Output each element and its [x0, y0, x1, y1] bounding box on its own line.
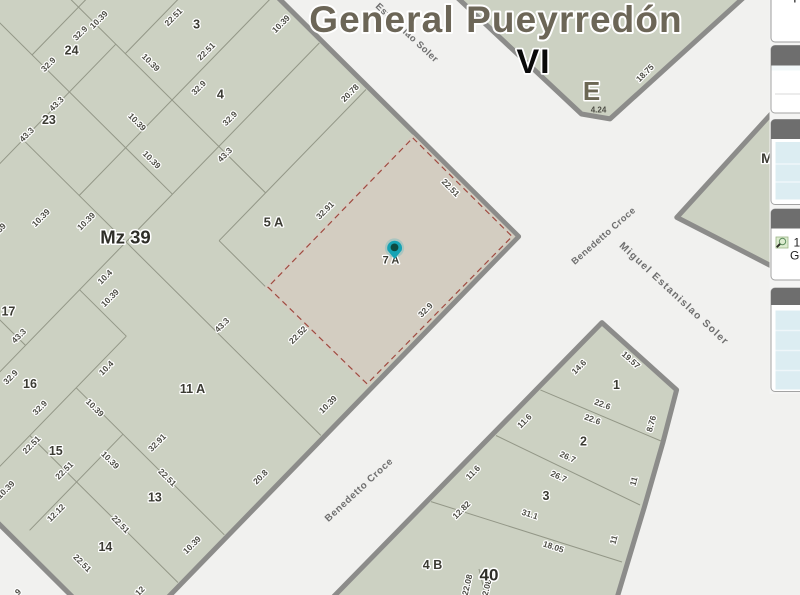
svg-text:16: 16	[23, 377, 37, 391]
svg-text:15: 15	[49, 444, 63, 458]
svg-text:19: 19	[794, 236, 800, 250]
svg-text:24: 24	[65, 44, 79, 58]
svg-text:E: E	[583, 76, 600, 106]
svg-text:5 A: 5 A	[264, 215, 284, 230]
svg-text:40: 40	[480, 566, 499, 585]
svg-text:13: 13	[148, 491, 162, 505]
svg-text:Gen: Gen	[790, 249, 800, 263]
svg-text:11 A: 11 A	[180, 382, 205, 396]
svg-text:VI: VI	[516, 43, 550, 81]
svg-text:2: 2	[580, 435, 587, 449]
svg-text:14: 14	[98, 540, 112, 554]
svg-text:3: 3	[543, 489, 550, 503]
svg-text:3: 3	[193, 17, 200, 31]
svg-text:1: 1	[613, 378, 620, 392]
svg-text:General Pueyrredón: General Pueyrredón	[309, 0, 683, 40]
svg-text:4: 4	[217, 88, 224, 102]
svg-text:4.24: 4.24	[591, 106, 607, 115]
svg-text:4 B: 4 B	[423, 558, 442, 572]
svg-text:23: 23	[42, 113, 56, 127]
svg-text:Mz 39: Mz 39	[100, 227, 150, 248]
svg-text:17: 17	[1, 304, 15, 318]
